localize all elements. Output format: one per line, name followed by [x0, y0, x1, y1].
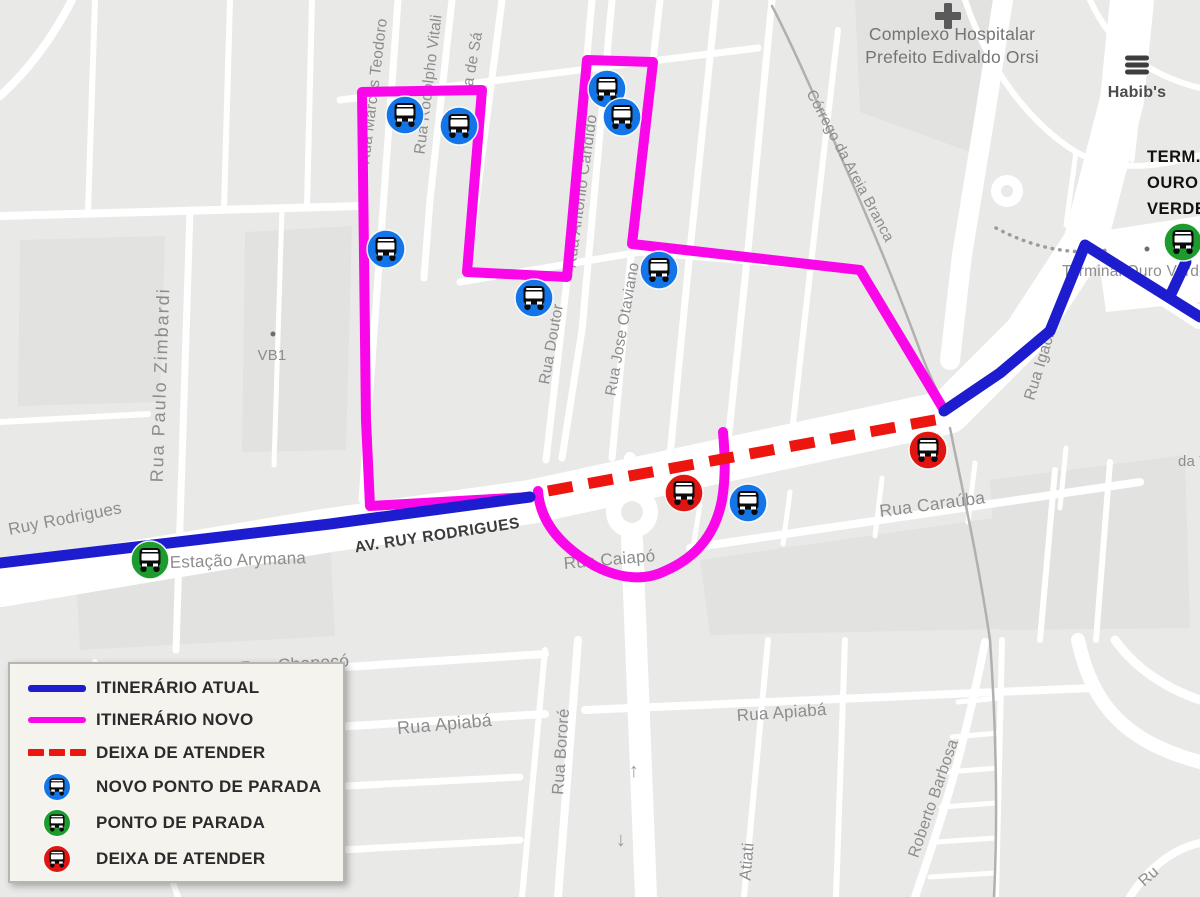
bus-bumper — [676, 497, 681, 500]
legend-swatch-removed-line — [18, 749, 96, 756]
legend-label: DEIXA DE ATENDER — [96, 849, 265, 869]
bus-windshield — [451, 120, 468, 127]
bus-stop-new-icon — [729, 484, 767, 522]
legend-label: PONTO DE PARADA — [96, 813, 265, 833]
bus-bumper — [920, 454, 925, 457]
bus-windshield — [614, 111, 631, 118]
poi-label: TERM. — [1147, 148, 1200, 166]
bus-windshield — [51, 818, 63, 823]
bus-stop-new-icon — [367, 230, 405, 268]
bus-stop-new-icon — [515, 279, 553, 317]
legend-item-deixa-de-atender-stop: DEIXA DE ATENDER — [18, 845, 337, 873]
bus-bumper — [610, 93, 615, 96]
bus-bumper — [59, 825, 63, 827]
legend-swatch-new-line — [18, 717, 96, 723]
legend-item-deixa-de-atender-line: DEIXA DE ATENDER — [18, 741, 337, 765]
bus-windshield — [740, 497, 757, 504]
bus-wheel — [50, 863, 55, 868]
bus-bumper — [51, 861, 55, 863]
bus-wheel — [449, 132, 455, 138]
bus-roofline — [51, 816, 62, 817]
legend-label: ITINERÁRIO NOVO — [96, 710, 254, 730]
bus-bumper — [931, 454, 936, 457]
bus-stop-current-icon — [1164, 223, 1200, 261]
bus-wheel — [59, 791, 64, 796]
bus-roofline — [51, 780, 62, 781]
bus-stop-removed-icon — [40, 842, 74, 876]
bus-bumper — [389, 253, 394, 256]
bus-windshield — [142, 554, 159, 561]
bus-bumper — [625, 121, 630, 124]
bus-stop-new-icon — [40, 770, 74, 804]
roundabout-island — [621, 501, 643, 523]
bus-bumper — [378, 253, 383, 256]
bus-wheel — [408, 121, 414, 127]
bus-wheel — [50, 827, 55, 832]
bus-bumper — [651, 274, 656, 277]
street-label: Atiati — [736, 842, 757, 881]
burger-icon — [1125, 63, 1149, 68]
bus-wheel — [649, 276, 655, 282]
bus-stop-removed-icon — [665, 474, 703, 512]
bus-wheel — [389, 255, 395, 261]
bus-stop-current-icon — [131, 541, 169, 579]
bus-bumper — [740, 507, 745, 510]
bus-roofline — [651, 260, 667, 262]
legend-item-itinerario-novo: ITINERÁRIO NOVO — [18, 708, 337, 732]
bus-wheel — [751, 509, 757, 515]
bus-wheel — [153, 566, 159, 572]
bus-stop-current-icon — [43, 809, 70, 836]
bus-bumper — [526, 302, 531, 305]
bus-roofline — [51, 852, 62, 853]
bus-bumper — [51, 789, 55, 791]
bus-bumper — [142, 564, 147, 567]
legend-item-itinerario-atual: ITINERÁRIO ATUAL — [18, 676, 337, 700]
bus-bumper — [408, 119, 413, 122]
street-label: VB1 — [258, 347, 287, 364]
bus-windshield — [920, 444, 937, 451]
bus-bumper — [1186, 246, 1191, 249]
bus-wheel — [1173, 248, 1179, 254]
bus-wheel — [140, 566, 146, 572]
bus-wheel — [674, 499, 680, 505]
building-block — [242, 226, 352, 452]
bus-bumper — [59, 789, 63, 791]
bus-stop-removed-icon — [43, 845, 70, 872]
bus-wheel — [395, 121, 401, 127]
bus-roofline — [676, 483, 692, 485]
bus-stop-new-icon — [440, 107, 478, 145]
bus-wheel — [931, 456, 937, 462]
bus-stop-current-icon — [40, 806, 74, 840]
bus-wheel — [612, 123, 618, 129]
bus-stop-new-icon — [386, 96, 424, 134]
bus-wheel — [462, 132, 468, 138]
bus-bumper — [662, 274, 667, 277]
bus-roofline — [397, 105, 413, 107]
building-block — [990, 455, 1190, 630]
bus-bumper — [599, 93, 604, 96]
poi-dot — [271, 332, 276, 337]
bus-roofline — [142, 550, 158, 552]
legend-item-novo-ponto: NOVO PONTO DE PARADA — [18, 773, 337, 801]
one-way-arrow-icon: ↓ — [616, 829, 626, 851]
bus-bumper — [462, 130, 467, 133]
map-legend: ITINERÁRIO ATUAL ITINERÁRIO NOVO DEIXA D… — [8, 662, 345, 883]
road-segment — [632, 540, 646, 897]
roundabout-island — [1001, 185, 1013, 197]
poi-label: VERDE — [1147, 200, 1200, 218]
bus-roofline — [740, 493, 756, 495]
legend-label: ITINERÁRIO ATUAL — [96, 678, 259, 698]
bus-stop-removed-icon — [909, 431, 947, 469]
bus-wheel — [1186, 248, 1192, 254]
bus-stop-new-icon — [603, 98, 641, 136]
bus-bumper — [59, 861, 63, 863]
bus-wheel — [918, 456, 924, 462]
bus-bumper — [397, 119, 402, 122]
bus-wheel — [597, 95, 603, 101]
poi-dot — [1145, 247, 1150, 252]
bus-roofline — [378, 239, 394, 241]
bus-windshield — [599, 83, 616, 90]
bus-windshield — [397, 109, 414, 116]
building-block — [18, 236, 165, 406]
burger-icon — [1125, 70, 1149, 75]
one-way-arrow-icon: ↑ — [629, 760, 639, 782]
bus-bumper — [153, 564, 158, 567]
burger-icon — [1125, 56, 1149, 61]
street-label: da T — [1178, 453, 1200, 470]
bus-wheel — [524, 304, 530, 310]
legend-label: DEIXA DE ATENDER — [96, 743, 265, 763]
bus-bumper — [751, 507, 756, 510]
bus-bumper — [51, 825, 55, 827]
bus-bumper — [537, 302, 542, 305]
bus-roofline — [599, 79, 615, 81]
bus-bumper — [614, 121, 619, 124]
bus-wheel — [59, 863, 64, 868]
bus-wheel — [50, 791, 55, 796]
bus-windshield — [526, 292, 543, 299]
bus-roofline — [526, 288, 542, 290]
bus-stop-new-icon — [43, 773, 70, 800]
bus-bumper — [451, 130, 456, 133]
poi-label: Habib's — [1108, 84, 1167, 101]
legend-item-ponto-de-parada: PONTO DE PARADA — [18, 809, 337, 837]
bus-wheel — [687, 499, 693, 505]
poi-label: OURO — [1147, 174, 1199, 192]
bus-wheel — [625, 123, 631, 129]
bus-wheel — [662, 276, 668, 282]
bus-bumper — [687, 497, 692, 500]
bus-windshield — [651, 264, 668, 271]
route-map: Rua Marcos TeodoroRua Rodolpho Vitalita … — [0, 0, 1200, 897]
bus-windshield — [676, 487, 693, 494]
bus-wheel — [376, 255, 382, 261]
bus-bumper — [1175, 246, 1180, 249]
bus-windshield — [1175, 236, 1192, 243]
bus-roofline — [920, 440, 936, 442]
legend-swatch-current-line — [18, 685, 96, 692]
bus-roofline — [1175, 232, 1191, 234]
bus-windshield — [51, 782, 63, 787]
legend-label: NOVO PONTO DE PARADA — [96, 777, 321, 797]
bus-roofline — [614, 107, 630, 109]
bus-wheel — [537, 304, 543, 310]
bus-windshield — [51, 854, 63, 859]
bus-roofline — [451, 116, 467, 118]
bus-wheel — [738, 509, 744, 515]
bus-wheel — [59, 827, 64, 832]
bus-windshield — [378, 243, 395, 250]
bus-stop-new-icon — [640, 251, 678, 289]
poi-label: Prefeito Edivaldo Orsi — [865, 47, 1039, 67]
hospital-cross-icon — [935, 12, 961, 20]
